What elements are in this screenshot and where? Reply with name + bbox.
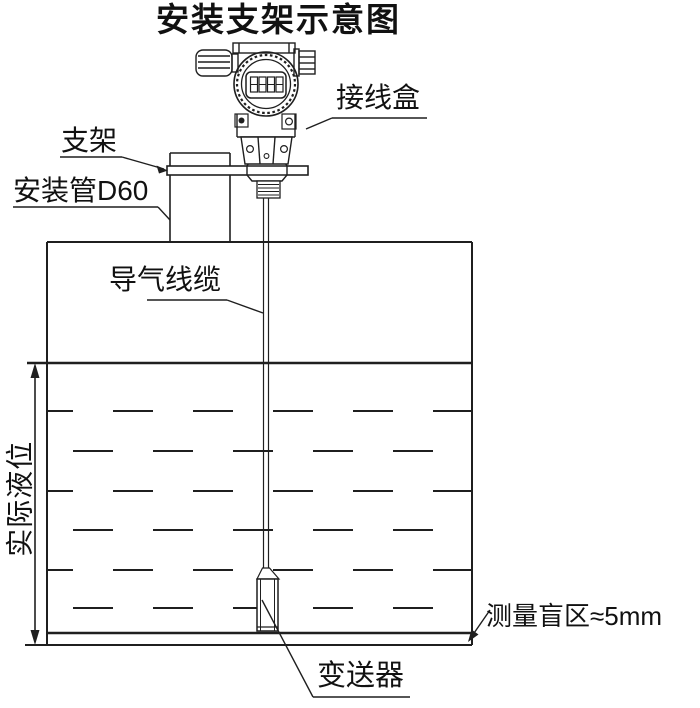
probe (257, 568, 279, 631)
cable-gland-icon (196, 50, 238, 76)
screw-icon (286, 118, 293, 125)
page-title: 安装支架示意图 (156, 2, 401, 39)
label-junction-box: 接线盒 (336, 82, 420, 113)
label-actual-level: 实际液位 (4, 419, 35, 579)
lcd-display (246, 72, 286, 98)
label-transmitter: 变送器 (317, 660, 404, 692)
arrow-down-icon (31, 630, 40, 645)
leader-bracket (60, 157, 168, 174)
leader-mounting-pipe (13, 207, 170, 220)
threaded-stub (257, 181, 280, 198)
side-connector-icon (294, 49, 315, 76)
label-bracket: 支架 (61, 125, 117, 156)
arrow-up-icon (31, 363, 40, 378)
label-blind-zone: 测量盲区≈5mm (486, 602, 662, 631)
air-guide-cable (264, 198, 269, 568)
tank-outline (25, 242, 472, 645)
label-air-cable: 导气线缆 (109, 264, 221, 295)
installation-diagram: 安装支架示意图 接线盒 支架 安装管D60 导气线缆 实际液位 测量盲区≈5mm… (0, 0, 700, 708)
leader-junction-box (306, 118, 427, 129)
right-screw-tab (282, 114, 296, 129)
arrowhead-icon (468, 630, 479, 643)
label-mounting-pipe: 安装管D60 (13, 175, 148, 206)
process-connection (241, 137, 292, 164)
screw-icon (239, 118, 245, 124)
leader-air-cable (147, 300, 263, 313)
